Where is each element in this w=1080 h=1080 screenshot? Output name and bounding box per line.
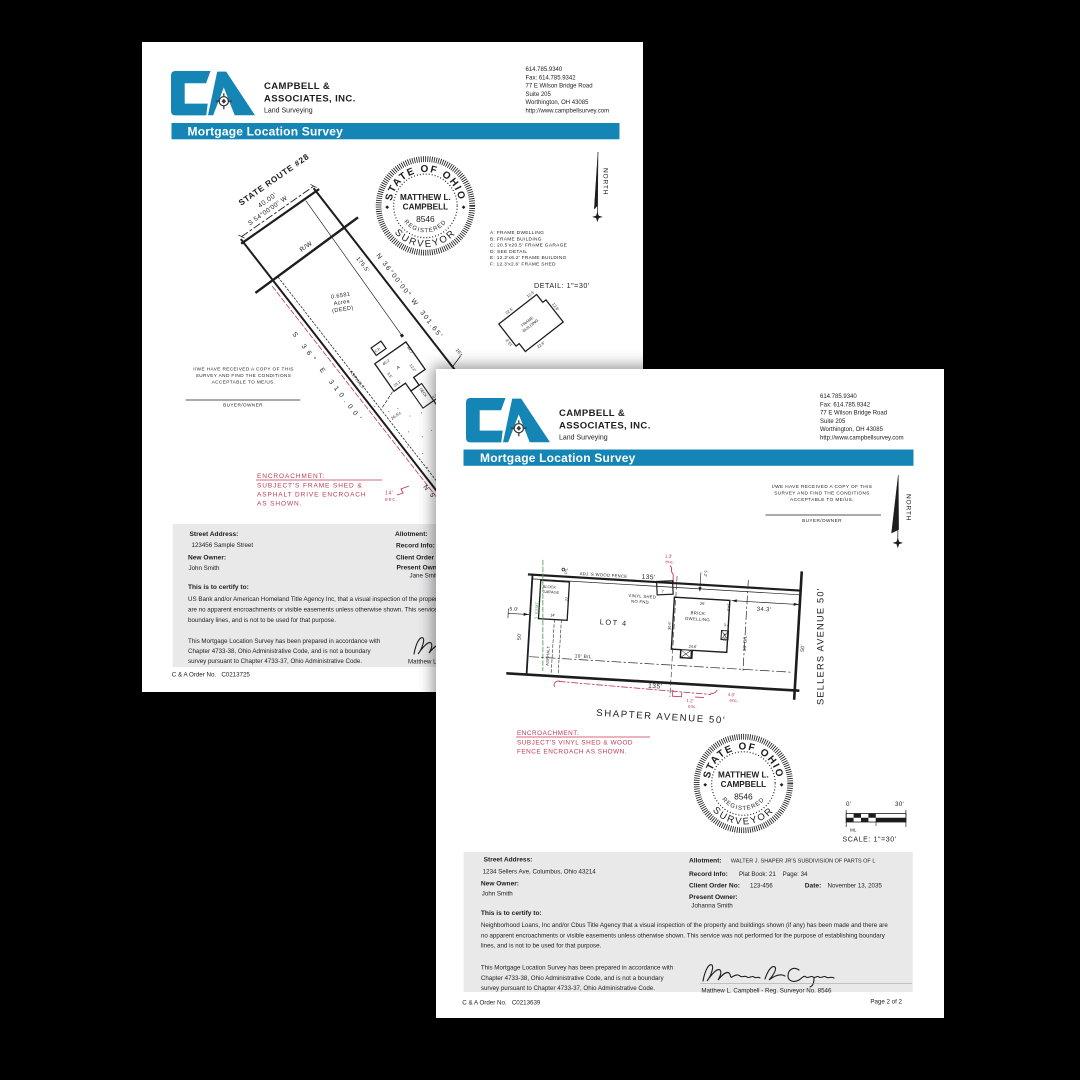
svg-text:MATTHEW L.: MATTHEW L.	[400, 193, 451, 202]
svg-text:Fax: 614.785.9342: Fax: 614.785.9342	[820, 402, 871, 408]
svg-text:40.2': 40.2'	[382, 358, 391, 366]
svg-text:50': 50'	[800, 644, 806, 652]
svg-text:DETAIL: 1"=30': DETAIL: 1"=30'	[534, 281, 590, 290]
svg-text:22': 22'	[564, 597, 569, 603]
svg-text:14.9': 14.9'	[726, 603, 731, 612]
svg-text:ENCROACHMENT:: ENCROACHMENT:	[517, 730, 579, 737]
svg-text:GARAGE: GARAGE	[542, 589, 559, 595]
svg-text:Land Surveying: Land Surveying	[559, 435, 608, 442]
svg-text:614.785.9340: 614.785.9340	[526, 67, 563, 73]
svg-text:NORTH: NORTH	[602, 168, 609, 195]
svg-text:30' B/L: 30' B/L	[742, 635, 748, 652]
svg-text:Neighborhood Loans, Inc and/or: Neighborhood Loans, Inc and/or Cbus Titl…	[481, 922, 888, 929]
svg-text:50': 50'	[517, 632, 523, 640]
svg-text:boundary lines, and is not to: boundary lines, and is not to be used fo…	[188, 617, 336, 624]
svg-text:Present Owner:: Present Owner:	[689, 894, 738, 901]
svg-text:Plat Book: 21 Page: 34: Plat Book: 21 Page: 34	[739, 871, 808, 878]
svg-text:26.5'±: 26.5'±	[390, 410, 403, 421]
svg-text:34.3': 34.3'	[757, 607, 772, 614]
svg-text:ENCROACHMENT:: ENCROACHMENT:	[257, 473, 325, 480]
svg-text:5.2': 5.2'	[703, 570, 708, 577]
svg-text:SUBJECT'S FRAME SHED &: SUBJECT'S FRAME SHED &	[257, 483, 363, 490]
svg-text:DWELLING: DWELLING	[685, 616, 710, 622]
svg-text:NO FND.: NO FND.	[631, 599, 651, 605]
svg-text:SCALE: 1"=30': SCALE: 1"=30'	[843, 837, 897, 844]
svg-text:Matthew L. Campbell - Reg. Sur: Matthew L. Campbell - Reg. Surveyor No. …	[701, 987, 832, 994]
svg-text:C: 20.5'x20.5' FRAME GARAGE: C: 20.5'x20.5' FRAME GARAGE	[490, 243, 567, 249]
svg-text:NORTH: NORTH	[905, 494, 912, 521]
svg-text:http://www.campbellsurvey.com: http://www.campbellsurvey.com	[820, 436, 904, 442]
svg-text:22.6': 22.6'	[536, 340, 546, 349]
svg-text:44.7': 44.7'	[406, 346, 414, 355]
svg-text:30.6': 30.6'	[666, 621, 671, 630]
svg-text:Allotment:: Allotment:	[689, 858, 722, 865]
svg-text:30': 30'	[895, 801, 904, 808]
svg-text:16'±: 16'±	[455, 347, 465, 357]
svg-text:F: 12.3'x2.6' FRAME SHED: F: 12.3'x2.6' FRAME SHED	[490, 262, 556, 268]
svg-text:Worthington, OH 43085: Worthington, OH 43085	[526, 100, 590, 106]
svg-text:Mortgage Location Survey: Mortgage Location Survey	[480, 451, 636, 465]
svg-text:SHAPTER AVENUE 50': SHAPTER AVENUE 50'	[596, 708, 727, 727]
svg-text:123-456: 123-456	[750, 883, 773, 890]
svg-text:22.5': 22.5'	[504, 306, 514, 315]
svg-text:ASPHALT DRIVE ENCROACH: ASPHALT DRIVE ENCROACH	[257, 492, 367, 499]
svg-text:C & A Order No. C0213725: C & A Order No. C0213725	[172, 672, 251, 679]
svg-text:14': 14'	[385, 491, 394, 497]
svg-text:77 E Wilson Bridge Road: 77 E Wilson Bridge Road	[526, 84, 593, 90]
svg-text:November 13, 2035: November 13, 2035	[828, 883, 883, 890]
svg-text:135': 135'	[641, 574, 656, 582]
svg-text:ACCEPTABLE TO ME/US.: ACCEPTABLE TO ME/US.	[212, 380, 276, 385]
svg-text:0': 0'	[846, 801, 851, 808]
svg-text:Record Info:: Record Info:	[689, 871, 728, 878]
svg-text:enc.: enc.	[688, 704, 697, 710]
svg-text:New Owner:: New Owner:	[481, 880, 519, 887]
svg-text:24.6': 24.6'	[688, 644, 697, 649]
svg-text:3.4: 3.4	[724, 622, 731, 627]
svg-text:77 E Wilson Bridge Road: 77 E Wilson Bridge Road	[820, 411, 887, 417]
svg-text:Street Address:: Street Address:	[484, 857, 533, 864]
svg-text:Page 2 of 2: Page 2 of 2	[870, 999, 902, 1006]
svg-text:no apparent encroachments or v: no apparent encroachments or visible eas…	[481, 932, 886, 939]
svg-text:enc.: enc.	[665, 559, 674, 565]
svg-text:CAMPBELL &: CAMPBELL &	[559, 408, 625, 419]
svg-text:DECK: DECK	[418, 387, 428, 398]
svg-text:enc.: enc.	[385, 497, 398, 503]
svg-text:John Smith: John Smith	[482, 890, 514, 897]
svg-text:enc.: enc.	[729, 698, 738, 704]
svg-text:Record Info:: Record Info:	[396, 543, 435, 550]
svg-text:This is to certify to:: This is to certify to:	[481, 910, 542, 917]
svg-text:ASPHALT: ASPHALT	[545, 645, 551, 666]
svg-text:This Mortgage Location Survey: This Mortgage Location Survey has been p…	[481, 965, 674, 972]
svg-text:survey pursuant to Chapter 473: survey pursuant to Chapter 4733-37, Ohio…	[188, 658, 362, 665]
svg-text:ACCEPTABLE TO ME/US.: ACCEPTABLE TO ME/US.	[790, 497, 854, 502]
svg-text:ASSOCIATES, INC.: ASSOCIATES, INC.	[264, 94, 356, 105]
svg-text:123456 Sample Street: 123456 Sample Street	[192, 542, 254, 549]
svg-text:WALTER J. SHAPER JR'S SUBDIVIS: WALTER J. SHAPER JR'S SUBDIVISION OF PAR…	[731, 859, 875, 865]
svg-text:A: A	[395, 364, 401, 370]
svg-text:8546: 8546	[416, 214, 435, 224]
svg-text:16.3': 16.3'	[722, 632, 727, 641]
svg-text:SURVEY AND FIND THE CONDITIONS: SURVEY AND FIND THE CONDITIONS	[196, 373, 292, 378]
svg-text:SELLERS AVENUE 50': SELLERS AVENUE 50'	[816, 587, 826, 705]
svg-text:Chapter 4733-38, Ohio Administ: Chapter 4733-38, Ohio Administrative Cod…	[188, 648, 372, 655]
svg-text:Date:: Date:	[805, 883, 822, 890]
svg-text:BUYER/OWNER: BUYER/OWNER	[223, 403, 263, 408]
svg-text:C & A Order No. C0213639: C & A Order No. C0213639	[462, 999, 541, 1006]
svg-text:Chapter 4733-38, Ohio Administ: Chapter 4733-38, Ohio Administrative Cod…	[481, 975, 665, 982]
svg-text:Johanna Smith: Johanna Smith	[691, 903, 733, 910]
svg-text:MATTHEW L.: MATTHEW L.	[718, 771, 769, 780]
svg-text:14': 14'	[550, 612, 556, 617]
svg-text:SUBJECT'S VINYL SHED & WOOD: SUBJECT'S VINYL SHED & WOOD	[517, 740, 633, 747]
svg-text:SURVEY AND FIND THE CONDITIONS: SURVEY AND FIND THE CONDITIONS	[774, 491, 870, 496]
svg-text:7': 7'	[661, 590, 664, 594]
svg-text:10' B/L: 10' B/L	[575, 653, 592, 660]
svg-text:Fax: 614.785.9342: Fax: 614.785.9342	[526, 75, 577, 81]
svg-text:Suite 205: Suite 205	[526, 92, 552, 98]
svg-text:12.5': 12.5'	[526, 289, 536, 298]
svg-text:A: FRAME DWELLING: A: FRAME DWELLING	[490, 230, 544, 236]
svg-text:13.3': 13.3'	[504, 337, 513, 347]
svg-text:Allotment:: Allotment:	[395, 531, 428, 538]
svg-text:8546: 8546	[734, 792, 753, 802]
svg-text:Client Order No:: Client Order No:	[689, 883, 740, 890]
svg-text:N 5: N 5	[421, 484, 436, 501]
svg-text:ML: ML	[850, 828, 857, 833]
svg-text:Worthington, OH 43085: Worthington, OH 43085	[820, 427, 884, 433]
svg-text:LOT 4: LOT 4	[600, 617, 628, 628]
svg-text:12.6': 12.6'	[551, 302, 560, 312]
svg-text:I/WE HAVE RECEIVED A COPY OF T: I/WE HAVE RECEIVED A COPY OF THIS	[772, 484, 872, 489]
svg-text:P/L: P/L	[564, 568, 568, 574]
svg-text:Mortgage Location Survey: Mortgage Location Survey	[188, 125, 344, 139]
svg-text:This is to certify to:: This is to certify to:	[188, 584, 249, 591]
svg-text:survey pursuant to Chapter 473: survey pursuant to Chapter 4733-37, Ohio…	[481, 985, 655, 992]
svg-text:1234 Sellers Ave, Columbus, Oh: 1234 Sellers Ave, Columbus, Ohio 43214	[483, 869, 597, 876]
svg-text:9.5': 9.5'	[386, 372, 393, 379]
svg-text:I/WE HAVE RECEIVED A COPY OF T: I/WE HAVE RECEIVED A COPY OF THIS	[193, 367, 293, 372]
svg-text:26': 26'	[700, 601, 706, 606]
svg-text:Street Address:: Street Address:	[190, 531, 239, 538]
svg-text:ASSOCIATES, INC.: ASSOCIATES, INC.	[559, 421, 651, 432]
svg-text:N 36°00'00" W 301.65': N 36°00'00" W 301.65'	[374, 252, 444, 340]
svg-text:CAMPBELL &: CAMPBELL &	[264, 81, 330, 92]
svg-text:CAMPBELL: CAMPBELL	[721, 780, 766, 789]
svg-text:Land Surveying: Land Surveying	[264, 108, 313, 115]
svg-text:Suite 205: Suite 205	[820, 419, 846, 425]
svg-text:12.2': 12.2'	[409, 363, 417, 372]
svg-text:lines, and is not to be used f: lines, and is not to be used for that pu…	[481, 943, 602, 950]
svg-text:E: 12.2'x6.2' FRAME BUILDING: E: 12.2'x6.2' FRAME BUILDING	[490, 255, 567, 261]
svg-text:BUYER/OWNER: BUYER/OWNER	[802, 518, 842, 523]
svg-text:B: FRAME BUILDING: B: FRAME BUILDING	[490, 236, 542, 242]
svg-text:AS SHOWN.: AS SHOWN.	[257, 501, 302, 508]
svg-text:FENCE ENCROACH AS SHOWN.: FENCE ENCROACH AS SHOWN.	[517, 749, 627, 756]
svg-text:BRICK: BRICK	[690, 610, 705, 616]
svg-text:http://www.campbellsurvey.com: http://www.campbellsurvey.com	[526, 109, 610, 115]
svg-text:John Smith: John Smith	[189, 565, 221, 572]
svg-text:New Owner:: New Owner:	[188, 555, 226, 562]
svg-text:614.785.9340: 614.785.9340	[820, 394, 857, 400]
svg-text:5.0': 5.0'	[509, 606, 518, 613]
svg-text:This Mortgage Location Survey: This Mortgage Location Survey has been p…	[188, 638, 381, 645]
svg-text:D: SEE DETAIL: D: SEE DETAIL	[490, 249, 527, 255]
svg-text:CAMPBELL: CAMPBELL	[403, 202, 448, 211]
